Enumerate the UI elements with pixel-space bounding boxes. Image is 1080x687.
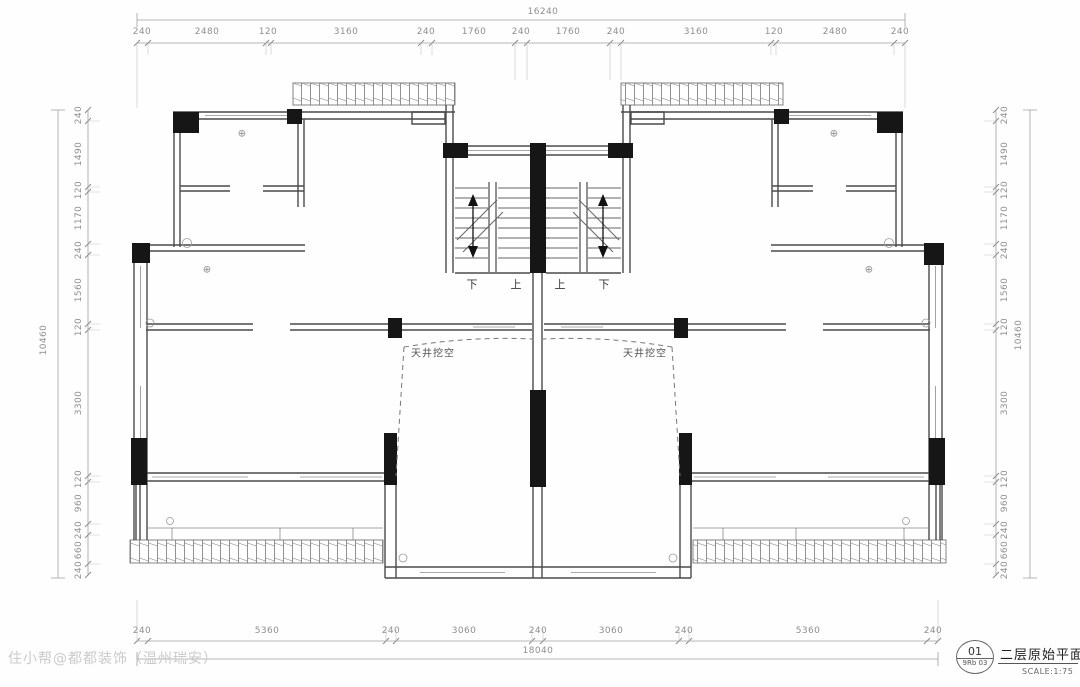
dim-left-segment: 240 [74,241,84,259]
dim-top-overall: 16240 [528,7,559,17]
sheet-number: 01 [957,646,993,658]
terrace-lines [147,528,929,540]
dim-top-segment: 120 [259,27,277,37]
dim-top-segment: 1760 [556,27,581,37]
dim-right-segment: 960 [1000,494,1010,512]
dim-bottom-overall: 18040 [523,646,554,656]
dim-left-segment: 120 [74,181,84,199]
dim-left-segment: 120 [74,470,84,488]
dim-bottom-segment: 3060 [452,626,477,636]
void-label-left: 天井挖空 [411,345,455,360]
dim-top-segment: 2480 [823,27,848,37]
center-symbol: ⊕ [865,265,873,276]
void-label-right: 天井挖空 [623,345,667,360]
dim-left-segment: 240 [74,106,84,124]
center-symbol: ⊕ [830,129,838,140]
dim-left-segment: 1490 [74,142,84,167]
dim-right-segment: 3300 [1000,391,1010,416]
dim-right-segment: 1560 [1000,278,1010,303]
floor-plan-drawing [0,0,1080,687]
dim-left-segment: 120 [74,318,84,336]
stair-down-label: 下 [467,276,478,292]
dimension-lines [51,13,1037,666]
dim-right-segment: 1170 [1000,206,1010,231]
dim-left-segment: 1170 [74,206,84,231]
dim-left-segment: 240 [74,561,84,579]
dim-right-segment: 240 [1000,521,1010,539]
dim-bottom-segment: 5360 [796,626,821,636]
dim-bottom-segment: 240 [529,626,547,636]
watermark-text: 住小帮@都都装饰（温州瑞安） [8,648,218,668]
stair-up-label: 上 [511,276,522,292]
dim-right-segment: 660 [1000,541,1010,559]
floor-plan-page: 16240 240 2480 120 3160 240 1760 240 176… [0,0,1080,687]
stair-up-label: 上 [555,276,566,292]
dim-left-segment: 960 [74,494,84,512]
center-symbol: ⊕ [238,129,246,140]
dim-top-segment: 240 [891,27,909,37]
dim-top-segment: 120 [765,27,783,37]
sheet-ref: 9Rb 03 [957,658,993,668]
dim-top-segment: 240 [417,27,435,37]
dim-left-segment: 240 [74,521,84,539]
dim-right-segment: 1490 [1000,142,1010,167]
drawing-title: 二层原始平面图 [1000,644,1080,663]
dim-bottom-segment: 240 [133,626,151,636]
dim-top-segment: 240 [607,27,625,37]
dim-right-segment: 240 [1000,106,1010,124]
dim-top-segment: 240 [512,27,530,37]
dim-bottom-segment: 240 [382,626,400,636]
title-underline [998,663,1078,664]
dim-left-segment: 3300 [74,391,84,416]
dim-bottom-segment: 240 [924,626,942,636]
dim-right-segment: 120 [1000,318,1010,336]
dim-right-overall: 10460 [1014,320,1024,351]
dim-right-segment: 120 [1000,470,1010,488]
dim-left-segment: 1560 [74,278,84,303]
dim-top-segment: 3160 [334,27,359,37]
dim-bottom-segment: 240 [675,626,693,636]
dim-bottom-segment: 3060 [599,626,624,636]
dim-left-segment: 660 [74,541,84,559]
dim-right-segment: 120 [1000,181,1010,199]
sheet-number-bubble: 01 9Rb 03 [956,640,994,674]
columns [131,109,945,487]
dim-bottom-segment: 5360 [255,626,280,636]
dim-left-overall: 10460 [39,325,49,356]
dim-right-segment: 240 [1000,241,1010,259]
dim-top-segment: 240 [133,27,151,37]
dim-right-segment: 240 [1000,561,1010,579]
center-symbol: ⊕ [203,265,211,276]
dim-top-segment: 3160 [684,27,709,37]
stair-down-label: 下 [599,276,610,292]
dim-top-segment: 2480 [195,27,220,37]
dim-top-segment: 1760 [462,27,487,37]
drawing-scale: SCALE:1:75 [1022,667,1073,676]
